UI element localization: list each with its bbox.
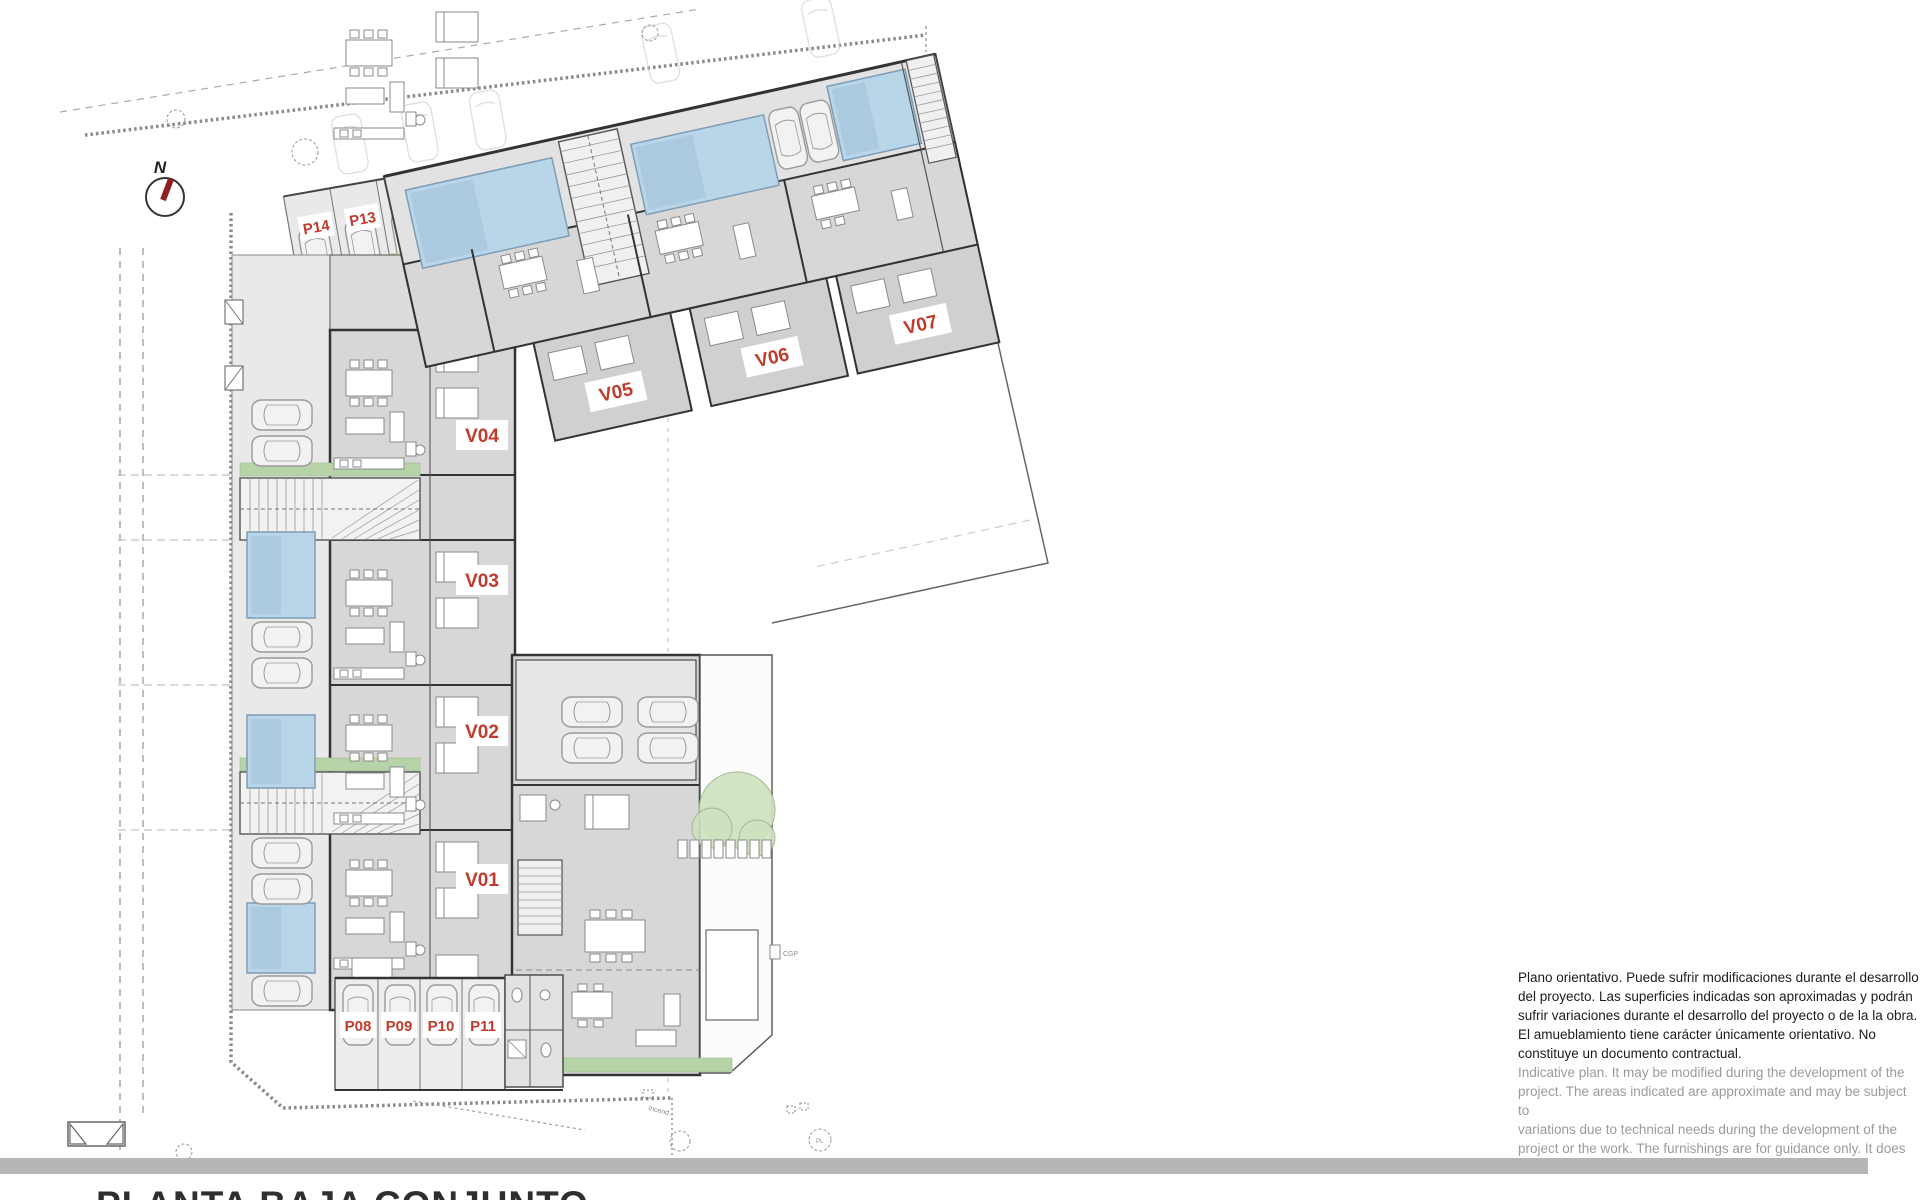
parking-label-p08: P08	[340, 1012, 376, 1038]
communal-stairs	[518, 860, 562, 935]
pool-v01	[247, 903, 315, 973]
svg-text:P10: P10	[428, 1018, 455, 1035]
svg-text:P08: P08	[345, 1018, 372, 1035]
svg-text:V04: V04	[465, 426, 499, 447]
parking-label-p10: P10	[423, 1012, 459, 1038]
compass-north-label: N	[154, 158, 167, 177]
parking-label-p09: P09	[381, 1012, 417, 1038]
service-rooms	[505, 975, 563, 1087]
unit-label-v02: V02	[456, 716, 508, 746]
parking-label-p11: P11	[465, 1012, 501, 1038]
sheet-title: PLANTA BAJA CONJUNTO	[96, 1184, 589, 1200]
svg-text:P11: P11	[470, 1018, 496, 1035]
svg-text:V02: V02	[465, 722, 499, 743]
gate-symbol	[68, 1122, 125, 1146]
north-compass: N	[146, 158, 184, 216]
pool-v03	[247, 532, 315, 618]
disclaimer-es-line: del proyecto. Las superficies indicadas …	[1518, 987, 1920, 1006]
lap-pool-outline	[706, 930, 758, 1020]
incend-note: Incend.	[648, 1105, 672, 1117]
pool-v07	[827, 69, 922, 161]
footer-divider-bar	[0, 1158, 1868, 1174]
disclaimer-en-line: project. The areas indicated are approxi…	[1518, 1082, 1920, 1120]
disclaimer-block: Plano orientativo. Puede sufrir modifica…	[1518, 968, 1920, 1177]
unit-furniture	[334, 12, 478, 139]
unit-label-v01: V01	[456, 864, 508, 894]
disclaimer-es-line: Plano orientativo. Puede sufrir modifica…	[1518, 968, 1920, 987]
pl-note: PL	[816, 1139, 824, 1145]
svg-text:P09: P09	[386, 1018, 413, 1035]
unit-label-v04: V04	[456, 420, 508, 450]
site-plan-sheet: P14 P13 P12	[0, 0, 1920, 1200]
parking-block-bottom: P08 P09 P10 P11	[335, 975, 563, 1090]
pool-v02	[247, 715, 315, 788]
disclaimer-es-line: El amueblamiento tiene carácter únicamen…	[1518, 1025, 1920, 1044]
svg-text:V01: V01	[465, 870, 499, 891]
disclaimer-en-line: variations due to technical needs during…	[1518, 1120, 1920, 1139]
disclaimer-es-line: constituye un documento contractual.	[1518, 1044, 1920, 1063]
svg-text:V03: V03	[465, 571, 499, 592]
cgp-note: CGP	[783, 951, 799, 958]
disclaimer-es-line: sufrir variaciones durante el desarrollo…	[1518, 1006, 1920, 1025]
disclaimer-en-line: project or the work. The furnishings are…	[1518, 1139, 1920, 1158]
stairs-module-1	[240, 478, 420, 540]
unit-label-v03: V03	[456, 565, 508, 595]
disclaimer-en-line: Indicative plan. It may be modified duri…	[1518, 1063, 1920, 1082]
